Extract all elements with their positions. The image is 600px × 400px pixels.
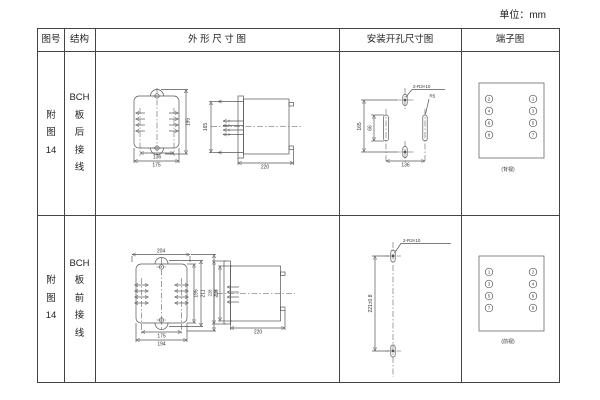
row2-install-drawing: 2-R3×10 221±0.8 [339,215,461,382]
terminal-number: 2 [532,270,535,275]
dim-slot-length: 66 [368,125,374,131]
dim-install-hspacing: 136 [401,163,410,169]
row1-outline-drawing: 136 175 195 165 220 [95,51,339,215]
note-slot-radius: R5 [430,94,436,99]
dim-side-height-inner: 211 [214,289,219,296]
dim-front-top-width: 204 [157,249,166,255]
unit-label: 单位：mm [470,6,546,21]
terminal-number: 6 [532,294,535,299]
dimension-table: 图号 结构 外 形 尺 寸 图 安装开孔尺寸图 端子图 附 图 14 BCH 板… [37,28,560,383]
row1-fig-no: 附 图 14 [38,51,64,215]
terminal-number: 1 [488,270,491,275]
terminal-view-caption: (背视) [501,166,515,173]
row1-structure: BCH 板 后 接 线 [64,51,95,215]
terminal-number: 8 [488,133,491,138]
dim-side-height-outer: 228 [208,289,213,297]
row2-fig-no: 附 图 14 [38,215,64,382]
dim-side-depth: 220 [261,165,270,171]
header-install: 安装开孔尺寸图 [339,29,461,51]
dim-front-height-1: 195 [194,289,200,298]
row2-outline-drawing: 204 175 194 [95,215,339,382]
terminal-number: 7 [488,306,491,311]
terminal-number: 1 [532,97,535,102]
terminal-number: 5 [488,294,491,299]
header-fig-no: 图号 [38,29,64,51]
page: 单位：mm 图号 结构 外 形 尺 寸 图 安装开孔尺寸图 端子图 附 图 14… [0,0,600,400]
dim-front-height-2: 211 [201,289,207,297]
dim-front-outer-width: 175 [152,163,161,169]
terminal-number: 3 [532,109,535,114]
terminal-number: 4 [488,109,491,114]
header-structure: 结构 [64,29,95,51]
terminal-view-caption: (前视) [501,338,515,345]
note-hole-size: 2-R3×10 [403,238,421,243]
terminal-number: 4 [532,282,535,287]
header-outline: 外 形 尺 寸 图 [95,29,339,51]
dim-front-inner-width: 136 [153,155,162,161]
header-terminal: 端子图 [461,29,559,51]
terminal-number: 6 [488,121,491,126]
terminal-number: 7 [532,133,535,138]
row1-terminal-diagram: 2 4 6 8 1 3 5 7 (背视) [461,51,559,215]
note-hole-size: 2-R3×10 [413,84,431,89]
dim-install-vspacing: 165 [357,122,363,131]
terminal-number: 5 [532,121,535,126]
dim-install-vspacing: 221±0.8 [368,294,374,312]
dim-front-height: 195 [186,118,192,127]
terminal-number: 8 [532,306,535,311]
row1-install-drawing: 165 66 2-R3×10 R5 136 [339,51,461,215]
terminal-number: 2 [488,97,491,102]
row2-structure: BCH 板 前 接 线 [64,215,95,382]
dim-side-height: 165 [203,123,209,132]
dim-front-outer-width: 194 [157,342,166,348]
row2-terminal-diagram: 1 3 5 7 2 4 6 8 (前视) [461,215,559,382]
terminal-number: 3 [488,282,491,287]
dim-side-depth: 220 [254,330,263,336]
dim-front-inner-width: 175 [157,334,166,340]
